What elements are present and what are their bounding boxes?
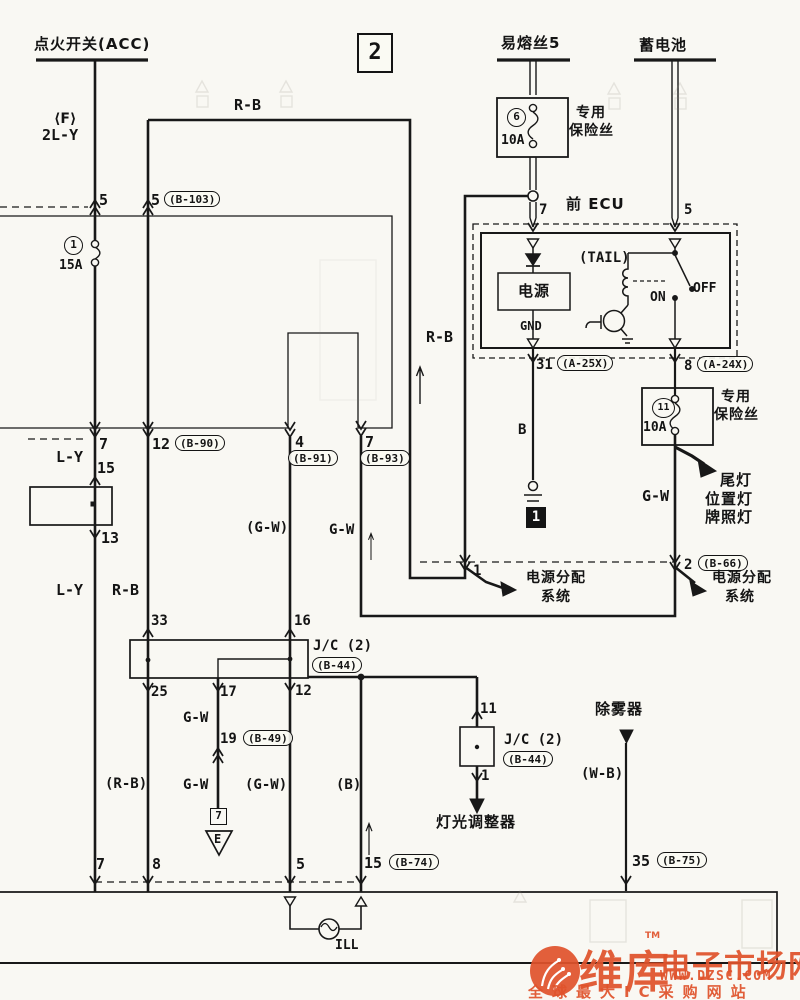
connector-b91: (B-91) bbox=[288, 450, 338, 466]
connector-b44-1: (B-44) bbox=[312, 657, 362, 673]
wire-label-gw-branch-upper: G-W bbox=[183, 711, 208, 725]
pin19-b49: 19 bbox=[220, 732, 237, 746]
jc2-pin11: 11 bbox=[480, 702, 497, 716]
wire-label-ly-lower: L-Y bbox=[56, 583, 83, 598]
jc2-name: J/C (2) bbox=[504, 733, 563, 747]
light-adjuster-label: 灯光调整器 bbox=[436, 815, 516, 830]
ecu-tail-label: (TAIL) bbox=[579, 251, 630, 265]
pin-triangle-icon bbox=[528, 239, 539, 248]
jc1-pin17: 17 bbox=[220, 685, 237, 699]
tail-lamp-line2: 位置灯 bbox=[705, 492, 753, 507]
wiring-lines bbox=[0, 0, 800, 1000]
pin15-b74: 15 bbox=[364, 856, 382, 871]
pin12-b90: 12 bbox=[152, 437, 170, 452]
ecu-power-box-label: 电源 bbox=[498, 273, 570, 310]
junction-ring-icon bbox=[528, 191, 538, 201]
pin7-b93: 7 bbox=[365, 435, 374, 450]
pin4-b91: 4 bbox=[295, 435, 304, 450]
connector-b103: (B-103) bbox=[164, 191, 220, 207]
ground-id-blackbox: 1 bbox=[526, 507, 546, 528]
fuse6-number: 6 bbox=[507, 108, 526, 127]
fuse11-note-1: 专用 bbox=[721, 390, 751, 404]
wire-label-b: B bbox=[518, 423, 526, 437]
pin-triangle-icon bbox=[670, 339, 681, 348]
fuse1-rating: 15A bbox=[59, 259, 82, 272]
wiring-diagram-page: 点火开关(ACC) 2 易熔丝5 蓄电池 R-B ⟨F⟩ 2L-Y 5 5 (B… bbox=[0, 0, 800, 1000]
fuse6-note-1: 专用 bbox=[576, 106, 606, 120]
earth-mark: E bbox=[214, 833, 221, 845]
pin1-dist: 1 bbox=[473, 564, 481, 578]
wire-label-gw-upper-paren: (G-W) bbox=[246, 521, 288, 535]
diode-icon bbox=[526, 254, 540, 265]
dist-left-line1: 电源分配 bbox=[526, 571, 586, 585]
wire-label-gw-upper: G-W bbox=[329, 523, 354, 537]
switch-blade-icon bbox=[675, 255, 690, 286]
tail-lamp-arrowhead-icon bbox=[698, 459, 716, 477]
ecu-pin8: 8 bbox=[684, 359, 692, 373]
ecu-pin7: 7 bbox=[539, 203, 547, 217]
defogger-title: 除雾器 bbox=[595, 702, 643, 717]
pin35-b75: 35 bbox=[632, 854, 650, 869]
pin8-bottom: 8 bbox=[152, 857, 161, 872]
fuse6-note-2: 保险丝 bbox=[569, 124, 614, 138]
wire-label-ly-upper: L-Y bbox=[56, 450, 83, 465]
fuse1-element-icon bbox=[95, 247, 100, 259]
wire-label-rb-left: R-B bbox=[112, 583, 139, 598]
connector-b93: (B-93) bbox=[360, 450, 410, 466]
jc1-pin33: 33 bbox=[151, 614, 168, 628]
pin15: 15 bbox=[97, 461, 115, 476]
section-number-box: 2 bbox=[357, 33, 393, 73]
battery-title: 蓄电池 bbox=[639, 38, 687, 53]
fusible-link-title: 易熔丝5 bbox=[501, 36, 560, 51]
fuse6-rating: 10A bbox=[501, 134, 524, 147]
fuse1-number: 1 bbox=[64, 236, 83, 255]
component-boxes bbox=[30, 487, 494, 855]
adjuster-arrowhead-icon bbox=[470, 799, 484, 813]
dist-right-line2: 系统 bbox=[725, 590, 755, 604]
pin7-left: 7 bbox=[99, 437, 108, 452]
wire-label-gw-right: G-W bbox=[642, 489, 669, 504]
dist-right-arrowhead-icon bbox=[690, 581, 706, 596]
acc-component-box bbox=[30, 487, 112, 525]
pin5-b103: 5 bbox=[151, 193, 160, 208]
ecu-on-label: ON bbox=[650, 291, 666, 304]
jc2-pin1: 1 bbox=[481, 769, 489, 783]
connector-f-tag: ⟨F⟩ bbox=[54, 112, 76, 126]
wire-label-b-paren: (B) bbox=[336, 778, 361, 792]
junction-dot-icon bbox=[358, 674, 365, 681]
pin7-bottom: 7 bbox=[96, 857, 105, 872]
connector-a25x: (A-25X) bbox=[557, 355, 613, 371]
jc1-pin16: 16 bbox=[294, 614, 311, 628]
wire-label-gw-lower-paren: (G-W) bbox=[245, 778, 287, 792]
connector-b75: (B-75) bbox=[657, 852, 707, 868]
wire-label-2ly: 2L-Y bbox=[42, 128, 78, 143]
ecu-pin5: 5 bbox=[684, 203, 692, 217]
wire-label-rb-top: R-B bbox=[234, 98, 261, 113]
pin5-acc: 5 bbox=[99, 193, 108, 208]
jc1-name: J/C (2) bbox=[313, 639, 372, 653]
ecu-off-label: OFF bbox=[693, 282, 716, 295]
jc1-pin12: 12 bbox=[295, 684, 312, 698]
fuse11-rating: 10A bbox=[643, 421, 666, 434]
connector-b90: (B-90) bbox=[175, 435, 225, 451]
pin2-b66: 2 bbox=[684, 558, 692, 572]
jc1-pin25: 25 bbox=[151, 685, 168, 699]
connector-b44-2: (B-44) bbox=[503, 751, 553, 767]
direction-arrows bbox=[366, 367, 423, 855]
fuse6-element-icon bbox=[528, 112, 538, 139]
wire-label-wb: (W-B) bbox=[581, 767, 623, 781]
connector-a24x: (A-24X) bbox=[697, 356, 753, 372]
ground-number-box: 7 bbox=[210, 808, 227, 825]
ill-lamp-label: ILL bbox=[335, 939, 358, 952]
wire-label-rb-mid: R-B bbox=[426, 330, 453, 345]
ignition-switch-title: 点火开关(ACC) bbox=[34, 37, 150, 52]
fuse11-note-2: 保险丝 bbox=[714, 408, 759, 422]
pin5-bottom: 5 bbox=[296, 857, 305, 872]
tail-lamp-line1: 尾灯 bbox=[720, 473, 752, 488]
defogger-arrowhead-icon bbox=[620, 730, 633, 743]
ill-lamp-icon bbox=[285, 897, 367, 939]
pin-triangle-icon bbox=[670, 239, 681, 248]
dist-left-line2: 系统 bbox=[541, 590, 571, 604]
ecu-ground-icon bbox=[524, 482, 542, 502]
tail-lamp-line3: 牌照灯 bbox=[705, 510, 753, 525]
pin-triangle-icon bbox=[528, 339, 539, 348]
wire-label-rb-paren: (R-B) bbox=[105, 777, 147, 791]
fuse-symbols bbox=[91, 98, 713, 445]
connector-b74: (B-74) bbox=[389, 854, 439, 870]
transistor-icon bbox=[604, 311, 625, 332]
fuse11-number: 11 bbox=[652, 398, 675, 418]
wire-battery bbox=[672, 60, 678, 227]
wire-rb-loop bbox=[148, 120, 528, 578]
ecu-gnd-label: GND bbox=[520, 320, 542, 332]
ecu-title: 前 ECU bbox=[566, 197, 625, 212]
dist-left-arrowhead-icon bbox=[501, 582, 516, 596]
connector-b66: (B-66) bbox=[698, 555, 748, 571]
wire-label-gw-branch-lower: G-W bbox=[183, 778, 208, 792]
dist-right-line1: 电源分配 bbox=[712, 571, 772, 585]
pin13: 13 bbox=[101, 531, 119, 546]
boundary-notch bbox=[0, 216, 392, 428]
connector-b49: (B-49) bbox=[243, 730, 293, 746]
ecu-pin31: 31 bbox=[536, 358, 553, 372]
